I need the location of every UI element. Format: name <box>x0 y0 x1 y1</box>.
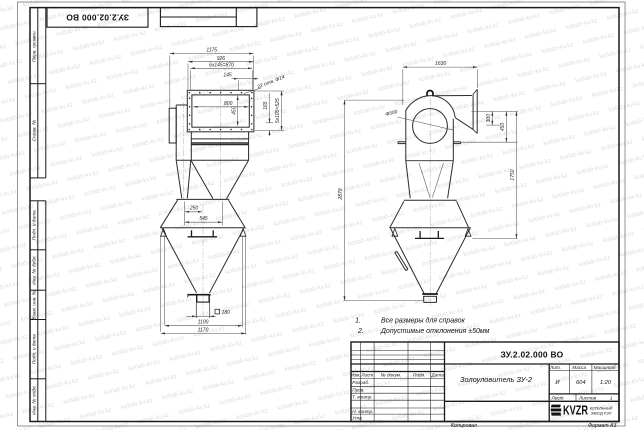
svg-text:1750: 1750 <box>510 169 516 180</box>
svg-text:КОТЕЛЬНЫЙ: КОТЕЛЬНЫЙ <box>590 406 613 410</box>
svg-text:Лит.: Лит. <box>549 365 561 370</box>
svg-text:Масштаб: Масштаб <box>594 365 616 370</box>
svg-text:KVZR: KVZR <box>563 404 588 418</box>
svg-text:1175: 1175 <box>206 48 217 54</box>
svg-text:6х145=870: 6х145=870 <box>209 62 234 68</box>
svg-text:165: 165 <box>263 101 269 110</box>
svg-text:Допустимые отклонения ±50мм: Допустимые отклонения ±50мм <box>380 328 490 335</box>
svg-text:ЗАВОД РЭП: ЗАВОД РЭП <box>591 411 612 415</box>
svg-text:250: 250 <box>189 206 199 212</box>
svg-text:Формат A3: Формат A3 <box>588 423 616 429</box>
svg-text:Лист: Лист <box>360 373 373 378</box>
svg-text:Лист: Лист <box>550 395 563 400</box>
svg-text:800: 800 <box>224 101 233 107</box>
svg-text:Копировал: Копировал <box>451 423 477 429</box>
svg-text:300: 300 <box>486 114 492 123</box>
svg-text:Т. контр.: Т. контр. <box>352 395 372 400</box>
svg-text:Изм.: Изм. <box>351 373 361 378</box>
svg-text:2.: 2. <box>357 328 364 335</box>
svg-text:180: 180 <box>222 310 231 316</box>
svg-text:Утв.: Утв. <box>352 416 363 421</box>
svg-text:Подп.: Подп. <box>413 373 425 378</box>
svg-text:Подп. и дата: Подп. и дата <box>32 210 38 240</box>
svg-text:Масса: Масса <box>572 365 586 370</box>
svg-text:ЗУ.2.02.000 ВО: ЗУ.2.02.000 ВО <box>501 349 564 359</box>
svg-text:Золоуловитель ЗУ-2: Золоуловитель ЗУ-2 <box>460 375 532 384</box>
svg-text:№ докум.: № докум. <box>381 373 402 378</box>
svg-text:Разраб.: Разраб. <box>352 380 369 385</box>
svg-text:ЗУ.2.02.000 ВО: ЗУ.2.02.000 ВО <box>66 13 129 23</box>
svg-text:Все размеры для справок: Все размеры для справок <box>381 317 466 325</box>
svg-text:Взам. инв. №: Взам. инв. № <box>32 290 38 320</box>
svg-text:926: 926 <box>217 56 226 62</box>
svg-text:1: 1 <box>610 395 613 400</box>
svg-text:450: 450 <box>500 123 506 132</box>
svg-text:1170: 1170 <box>198 327 209 333</box>
svg-text:5х105=525: 5х105=525 <box>275 98 281 123</box>
svg-text:Подп. и дата: Подп. и дата <box>32 334 38 364</box>
svg-text:2870: 2870 <box>338 188 344 200</box>
svg-text:Пров.: Пров. <box>352 388 364 393</box>
svg-text:Перв. примен.: Перв. примен. <box>32 30 38 62</box>
svg-text:545: 545 <box>199 216 208 222</box>
svg-text:1630: 1630 <box>435 61 446 67</box>
svg-text:145: 145 <box>223 73 232 79</box>
svg-text:1:20: 1:20 <box>600 380 612 386</box>
svg-text:Дата: Дата <box>430 373 444 378</box>
svg-text:1.: 1. <box>355 318 361 325</box>
svg-text:Справ. №: Справ. № <box>32 120 38 142</box>
svg-text:604: 604 <box>576 380 586 386</box>
svg-text:Инв. № подл.: Инв. № подл. <box>32 385 38 415</box>
svg-text:1100: 1100 <box>198 320 209 326</box>
svg-text:Н. контр.: Н. контр. <box>352 409 373 414</box>
svg-text:Листов: Листов <box>578 395 597 400</box>
svg-text:450: 450 <box>231 106 237 115</box>
svg-text:Инв. № дубл.: Инв. № дубл. <box>32 255 38 285</box>
